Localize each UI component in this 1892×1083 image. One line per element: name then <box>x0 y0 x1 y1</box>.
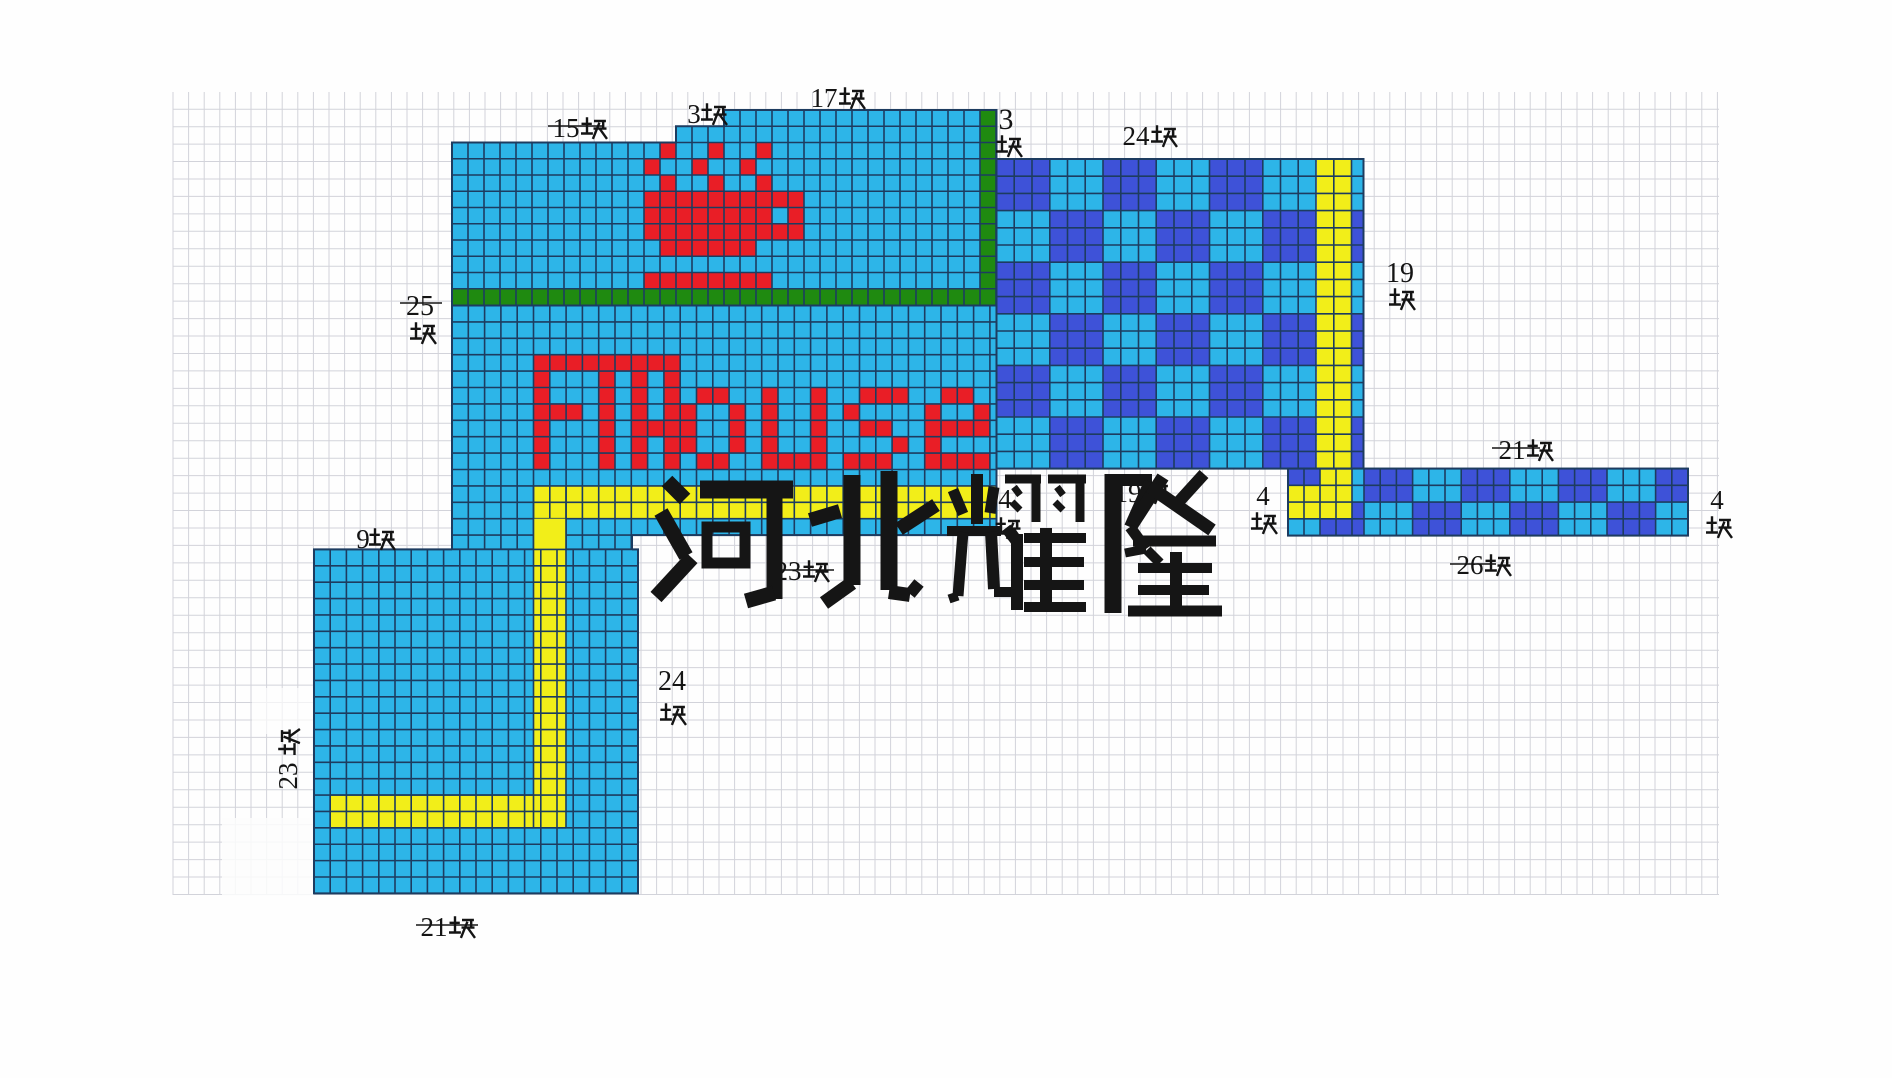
svg-text:15: 15 <box>553 113 580 143</box>
svg-text:4: 4 <box>998 484 1012 514</box>
svg-text:9: 9 <box>356 524 370 554</box>
svg-text:21: 21 <box>1499 435 1526 465</box>
svg-text:23: 23 <box>273 763 303 790</box>
svg-text:26: 26 <box>1457 550 1484 580</box>
svg-text:25: 25 <box>406 291 434 322</box>
svg-text:17: 17 <box>811 83 838 113</box>
svg-text:21: 21 <box>421 912 448 942</box>
svg-text:19: 19 <box>1386 258 1414 289</box>
svg-text:4: 4 <box>1710 485 1724 515</box>
svg-text:4: 4 <box>1256 481 1270 511</box>
svg-text:3: 3 <box>687 99 701 129</box>
svg-text:24: 24 <box>658 666 686 697</box>
svg-text:3: 3 <box>999 103 1014 136</box>
svg-text:24: 24 <box>1123 121 1151 151</box>
